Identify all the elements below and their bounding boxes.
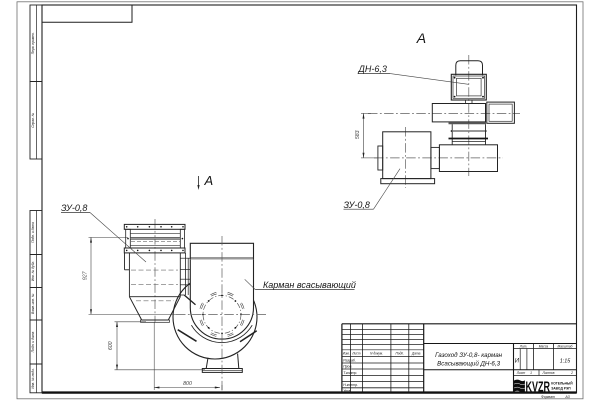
svg-text:Подп. и дата: Подп. и дата — [31, 222, 35, 243]
svg-text:Лит.: Лит. — [519, 344, 528, 348]
svg-text:Дата: Дата — [411, 352, 421, 356]
svg-text:1: 1 — [530, 371, 532, 375]
svg-text:Инв. № дубл.: Инв. № дубл. — [31, 261, 35, 281]
svg-text:А: А — [416, 30, 426, 46]
svg-text:Подп. и дата: Подп. и дата — [31, 332, 35, 353]
svg-text:N докум.: N докум. — [370, 352, 383, 356]
svg-text:Т.контр.: Т.контр. — [343, 371, 357, 375]
svg-text:И: И — [515, 359, 520, 365]
svg-text:Масштаб: Масштаб — [558, 344, 573, 348]
svg-text:927: 927 — [82, 270, 88, 280]
svg-text:Подп.: Подп. — [396, 352, 405, 356]
svg-text:Перв. примен.: Перв. примен. — [31, 32, 35, 54]
svg-text:Лист: Лист — [516, 371, 526, 375]
svg-text:1:15: 1:15 — [560, 359, 571, 365]
svg-text:Всасывающий ДН-6,3: Всасывающий ДН-6,3 — [437, 360, 500, 367]
svg-text:А: А — [204, 173, 214, 188]
svg-text:Лист: Лист — [351, 352, 361, 356]
svg-text:Разраб.: Разраб. — [343, 358, 356, 362]
svg-text:Инв. № подл.: Инв. № подл. — [31, 368, 35, 389]
svg-text:Газоход ЗУ-0,8- карман: Газоход ЗУ-0,8- карман — [435, 352, 503, 359]
svg-text:2: 2 — [570, 371, 573, 375]
svg-text:Утв.: Утв. — [343, 389, 351, 393]
svg-text:А3: А3 — [564, 395, 569, 399]
svg-text:ДН-6,3: ДН-6,3 — [358, 64, 387, 74]
svg-text:Справ. №: Справ. № — [31, 112, 35, 127]
svg-text:Пров.: Пров. — [343, 365, 352, 369]
svg-text:Масса: Масса — [539, 344, 549, 348]
svg-text:ЗУ-0,8: ЗУ-0,8 — [344, 200, 370, 210]
svg-text:Карман всасывающий: Карман всасывающий — [263, 280, 356, 290]
svg-text:Взам. инв. №: Взам. инв. № — [31, 293, 35, 314]
svg-text:Листов: Листов — [541, 371, 554, 375]
svg-text:600: 600 — [108, 341, 114, 350]
svg-text:800: 800 — [183, 381, 192, 387]
svg-text:Н.контр.: Н.контр. — [343, 383, 358, 387]
svg-text:ЗАВОД РЭП: ЗАВОД РЭП — [551, 386, 571, 390]
svg-text:Изм.: Изм. — [343, 352, 350, 356]
svg-text:ЗУ-0,8: ЗУ-0,8 — [61, 203, 87, 213]
svg-text:КОТЕЛЬНЫЙ: КОТЕЛЬНЫЙ — [551, 382, 573, 386]
svg-text:Формат: Формат — [541, 395, 555, 399]
svg-text:KVZR: KVZR — [526, 379, 551, 396]
svg-text:583: 583 — [355, 130, 361, 139]
